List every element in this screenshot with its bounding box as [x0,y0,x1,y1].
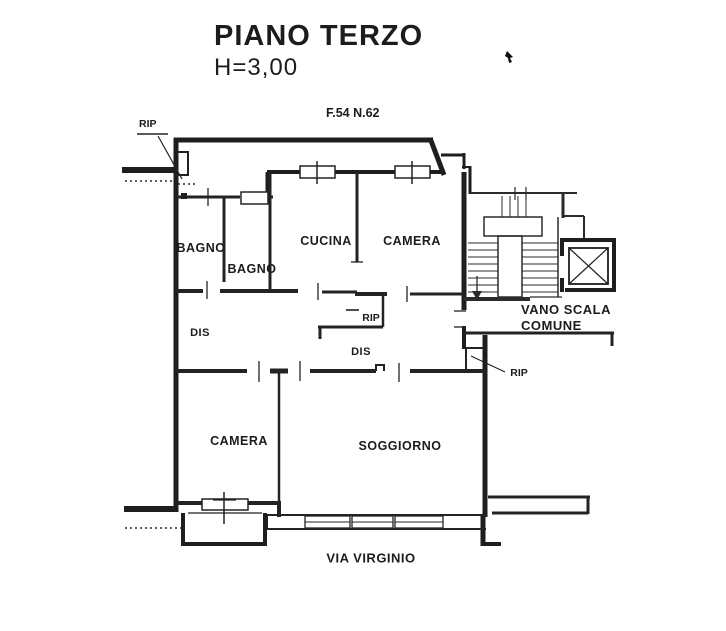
scan-artifact-mark [505,51,513,63]
outer-walls [122,138,501,546]
stairs-down-arrow-icon [472,276,482,300]
elevator-shaft [560,240,616,292]
page-title: PIANO TERZO [214,20,423,53]
elevator-icon [569,248,608,284]
stairs [464,187,584,300]
room-label-bagno-1: BAGNO [176,241,225,255]
street-label: VIA VIRGINIO [326,551,415,566]
floor-height-note: H=3,00 [214,54,298,82]
room-label-bagno-2: BAGNO [227,262,276,276]
annotation-rip-east: RIP [510,367,528,379]
dashed-boundary-lines [125,181,198,528]
annotation-rip-northwest: RIP [139,118,157,130]
cadastral-reference: F.54 N.62 [326,106,380,120]
floor-plan-page: PIANO TERZO H=3,00 F.54 N.62 RIP RIP BAG… [0,0,726,631]
inner-walls [176,172,614,529]
room-label-cucina: CUCINA [300,234,352,248]
room-label-dis-center: DIS [351,346,371,358]
room-label-camera-north: CAMERA [383,234,441,248]
stair-treads [468,243,558,292]
stairwell-label-line1: VANO SCALA [521,302,611,317]
room-label-soggiorno: SOGGIORNO [359,439,442,453]
windows [202,161,443,528]
stairwell-label-line2: COMUNE [521,318,582,333]
room-label-dis-west: DIS [190,327,210,339]
room-label-camera-south: CAMERA [210,434,268,448]
room-label-rip-center: RIP [362,312,380,324]
